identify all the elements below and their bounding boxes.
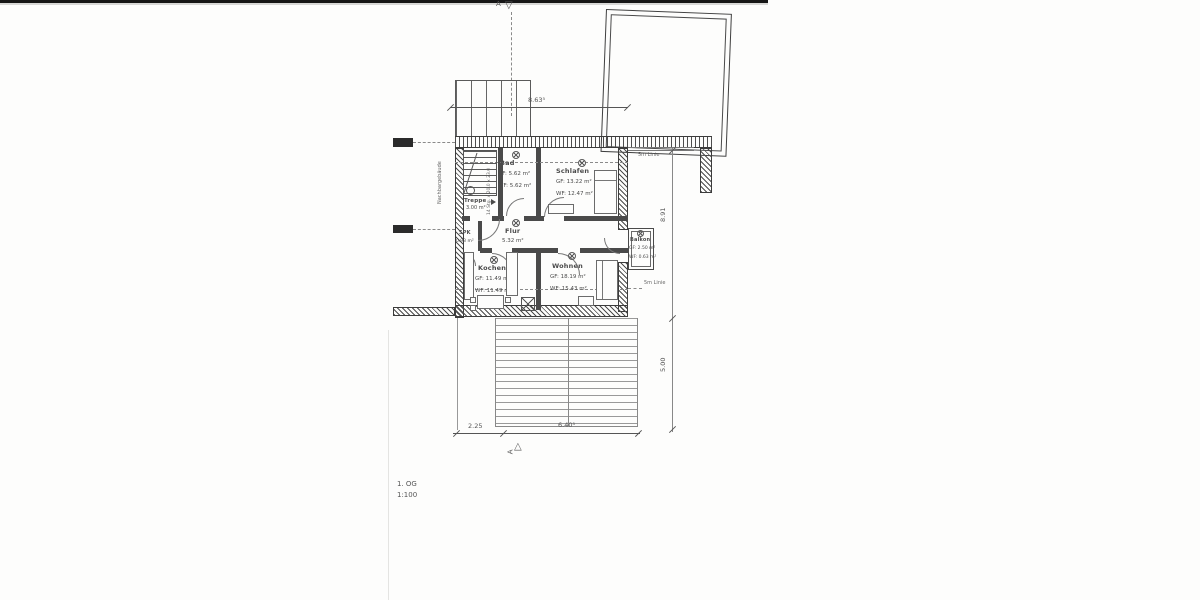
neighbor-label: Nachbargebäude [438,148,444,204]
garage-roof-outline [601,9,732,157]
room-bad-wf: WF: 5.62 m² [498,183,531,189]
plot-boundary-left [457,318,458,430]
room-spk-area: 0.93 m² [456,240,474,245]
room-schlafen-wf: WF: 12.47 m² [556,191,593,197]
flur-south-wall-seg [512,248,558,253]
dim-line-top [450,107,628,108]
garage-roof-inner-line [606,14,727,151]
room-balkon-name: Balkon [630,238,650,244]
wall-bad-schlafen [536,148,541,218]
ceiling-vent-icon-balkon [637,230,644,237]
chair [470,305,476,311]
neighbor-boundary-line-1 [413,142,455,143]
dim-bottom-left-label: 2.25 [468,423,482,430]
ceiling-vent-icon-bad [512,151,520,159]
dresser [548,204,574,214]
ceiling-vent-icon-wohnen [568,252,576,260]
dim-line-right [672,148,673,432]
line-5m-bottom-label: 5m Linie [644,281,665,287]
chair [470,297,476,303]
dim-right-upper-label: 8.91 [660,208,667,222]
room-bad-gf: GF: 5.62 m² [498,171,530,177]
room-balkon-gf: GF: 2.50 m² [629,247,655,252]
room-treppe-name: Treppe [464,198,486,204]
sofa [596,260,618,300]
paper-fold-line [388,330,389,600]
dim-top-label: 8.63⁵ [528,97,545,104]
room-wohnen-gf: GF: 18.19 m² [550,274,586,280]
room-treppe-area: 3.00 m² [466,206,486,212]
bed-pillow-line [595,180,616,181]
dim-line-bottom [453,433,640,434]
neighbor-wall-stub-3 [393,307,455,316]
room-bad-name: Bad [500,160,515,167]
flur-north-wall-seg [462,216,470,221]
flur-north-wall-seg [564,216,628,221]
line-5m-top-b [628,150,694,151]
carport-roof [455,80,531,137]
bed [594,170,617,214]
room-wohnen-wf: WF: 15.43 m² [550,286,587,292]
room-flur-name: Flur [505,228,520,235]
scale-label: 1:100 [397,492,417,500]
scan-band-top-shadow [0,3,768,5]
wall-right-stub [700,148,712,193]
dim-right-lower-label: 5.00 [660,358,667,372]
kitchen-unit-right [506,252,518,296]
ceiling-vent-icon-flur [512,219,520,227]
dim-bottom-right-label: 6.40⁵ [558,422,575,429]
stair-note: 14 Stg. x 20.0 x 23.0 [488,153,493,215]
wall-kochen-wohnen [536,253,541,310]
sofa-inner-line [602,261,603,299]
room-schlafen-name: Schlafen [556,168,589,175]
armchair [578,296,594,306]
line-5m-top-a [628,147,694,148]
room-balkon-wf: WF: 0.63 m² [629,256,656,261]
room-schlafen-gf: GF: 13.22 m² [556,179,592,185]
door-arc-bad [506,198,524,216]
floor-plan-sheet: ▽ A ▽ A 8.63⁵ Nachbargebäude [0,0,1200,600]
line-5m-bottom-dash [628,288,642,289]
flur-south-wall-seg [580,248,628,253]
floor-label: 1. OG [397,481,417,489]
terrace-divider [568,318,569,427]
room-wohnen-name: Wohnen [552,263,583,270]
dining-table [477,295,504,309]
flur-north-wall-seg [524,216,544,221]
room-kochen-name: Kochen [478,265,506,272]
neighbor-wall-stub-1 [393,138,413,147]
line-5m-top-label: 5m Linie [638,153,659,159]
neighbor-boundary-line-2 [413,229,455,230]
ceiling-vent-icon-schlafen [578,159,586,167]
section-letter-top: A [496,1,501,9]
room-flur-area: 5.32 m² [502,238,524,244]
kitchen-counter-left [464,252,474,300]
chair [505,297,511,303]
dim-tick [635,430,642,437]
section-letter-bottom: A [508,449,516,454]
room-spk-name: SPK [459,231,471,237]
door-arc-treppe [478,219,500,241]
neighbor-wall-stub-2 [393,225,413,233]
terrace-steps [495,318,638,427]
shaft-symbol [521,297,535,311]
section-marker-top-icon: ▽ [505,0,513,11]
stair-landing-circle [466,186,475,195]
ceiling-vent-icon-kochen [490,256,498,264]
